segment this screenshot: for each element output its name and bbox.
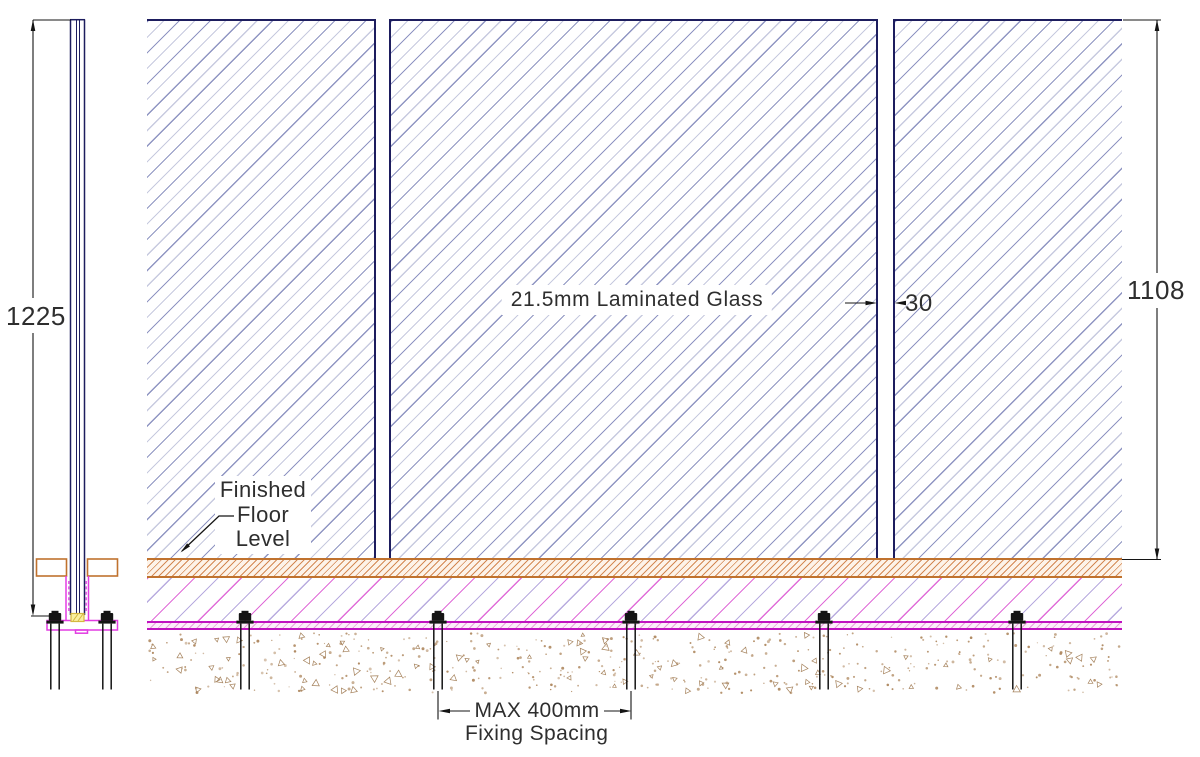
balustrade-technical-drawing: 1225 1108 30 21.5mm Laminated Glass Fini…: [0, 0, 1200, 757]
bolt: [429, 611, 446, 690]
bolt: [236, 611, 253, 690]
bolt: [815, 611, 832, 690]
dimension-1225-lines: [31, 20, 71, 617]
dimension-30-lines: [845, 301, 906, 306]
anchor-bolts: [46, 611, 1025, 690]
ffl-leader-arrow: [181, 516, 235, 553]
bolt: [98, 611, 115, 690]
bolt: [622, 611, 639, 690]
section-glass: [70, 20, 85, 616]
bolt: [1008, 611, 1025, 690]
bolt: [46, 611, 63, 690]
section-base-channel: [47, 576, 118, 633]
section-setting-block: [71, 614, 84, 622]
dimension-fixing-spacing-lines: [438, 691, 632, 720]
dimension-1108-lines: [1122, 20, 1161, 561]
linework-layer: [0, 0, 1200, 757]
